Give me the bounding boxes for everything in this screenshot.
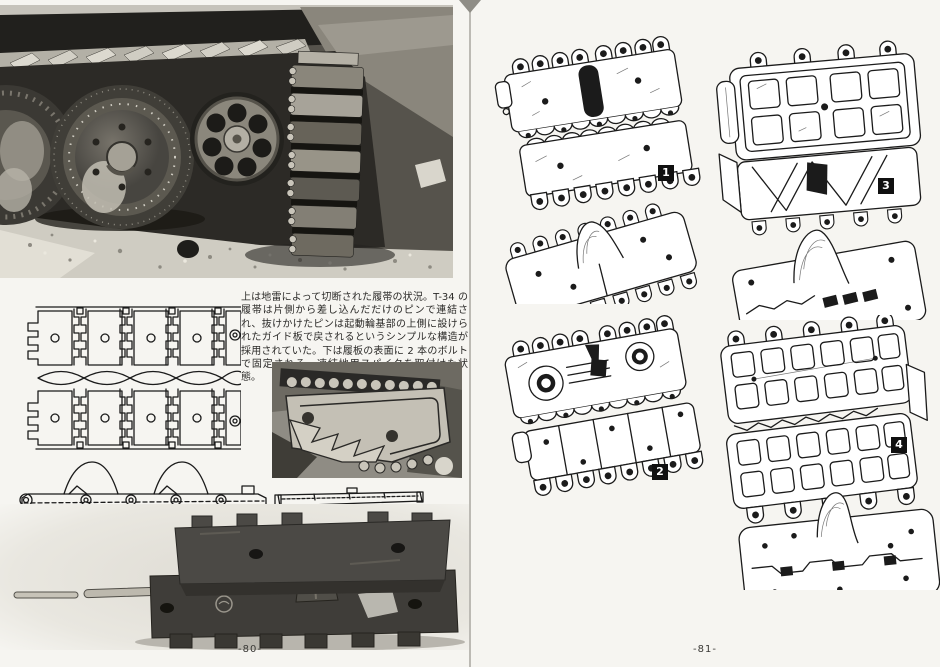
track-plan-drawing — [8, 299, 241, 457]
figure-3-drawing-waffle-link — [714, 33, 940, 320]
figure-2-drawing-cast-link — [496, 312, 708, 508]
page-left: 上は地雷によって切断された履帯の状況。T-34 の履帯は片側から差し込んだだけの… — [0, 0, 469, 667]
figure-2-label: 2 — [652, 464, 668, 480]
photo-track-links-with-pin — [0, 504, 470, 650]
hanging-track — [283, 51, 365, 257]
road-wheel-center — [50, 85, 194, 229]
book-spread: 上は地雷によって切断された履帯の状況。T-34 の履帯は片側から差し込んだだけの… — [0, 0, 940, 667]
page-right: 1 — [471, 0, 940, 667]
photo-t34-roadwheels-broken-track — [0, 5, 453, 278]
page-number-left: -80- — [205, 644, 295, 655]
figure-1-drawing-stamped-link — [494, 32, 709, 304]
figure-3-label: 3 — [878, 178, 894, 194]
figure-1-label: 1 — [658, 165, 674, 181]
page-number-right: -81- — [660, 644, 750, 655]
photo-spike-closeup — [272, 362, 462, 478]
road-wheel-spoked — [190, 92, 284, 186]
figure-4-label: 4 — [891, 437, 907, 453]
